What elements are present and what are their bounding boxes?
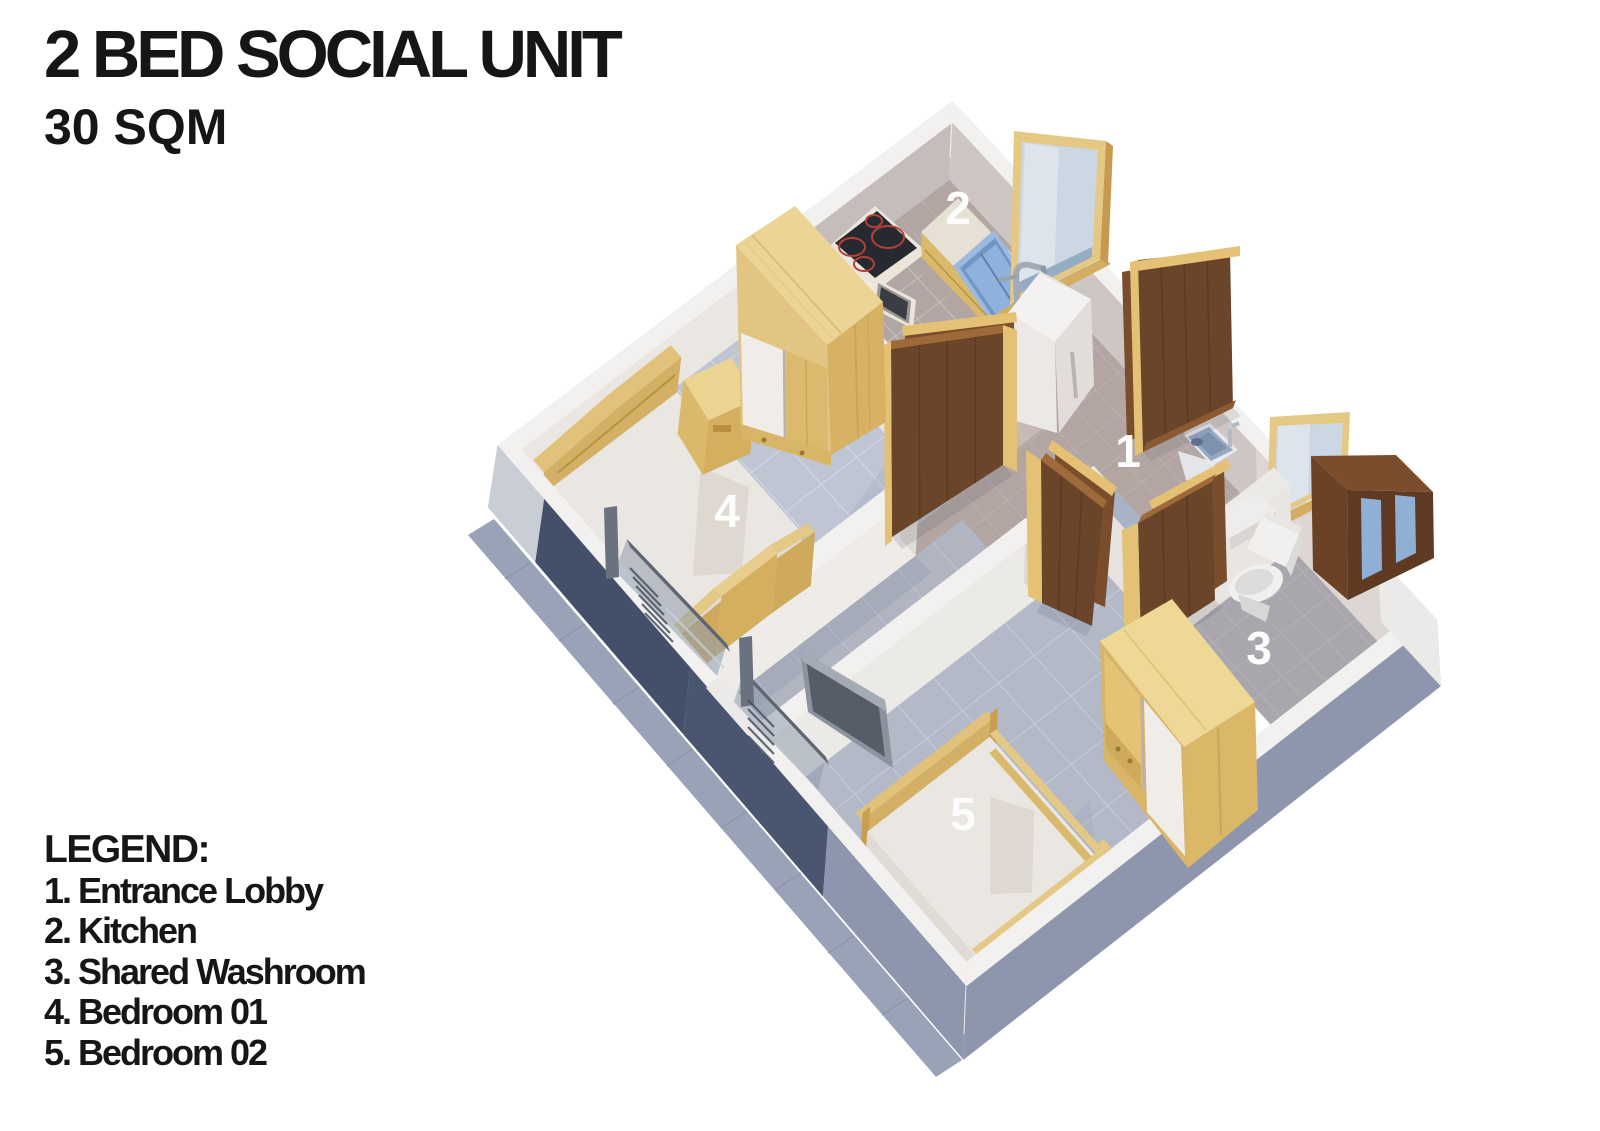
- svg-text:4: 4: [714, 485, 740, 537]
- svg-text:5: 5: [950, 788, 976, 840]
- svg-text:2: 2: [945, 182, 971, 234]
- svg-text:1: 1: [1115, 425, 1141, 477]
- svg-text:3: 3: [1246, 622, 1272, 674]
